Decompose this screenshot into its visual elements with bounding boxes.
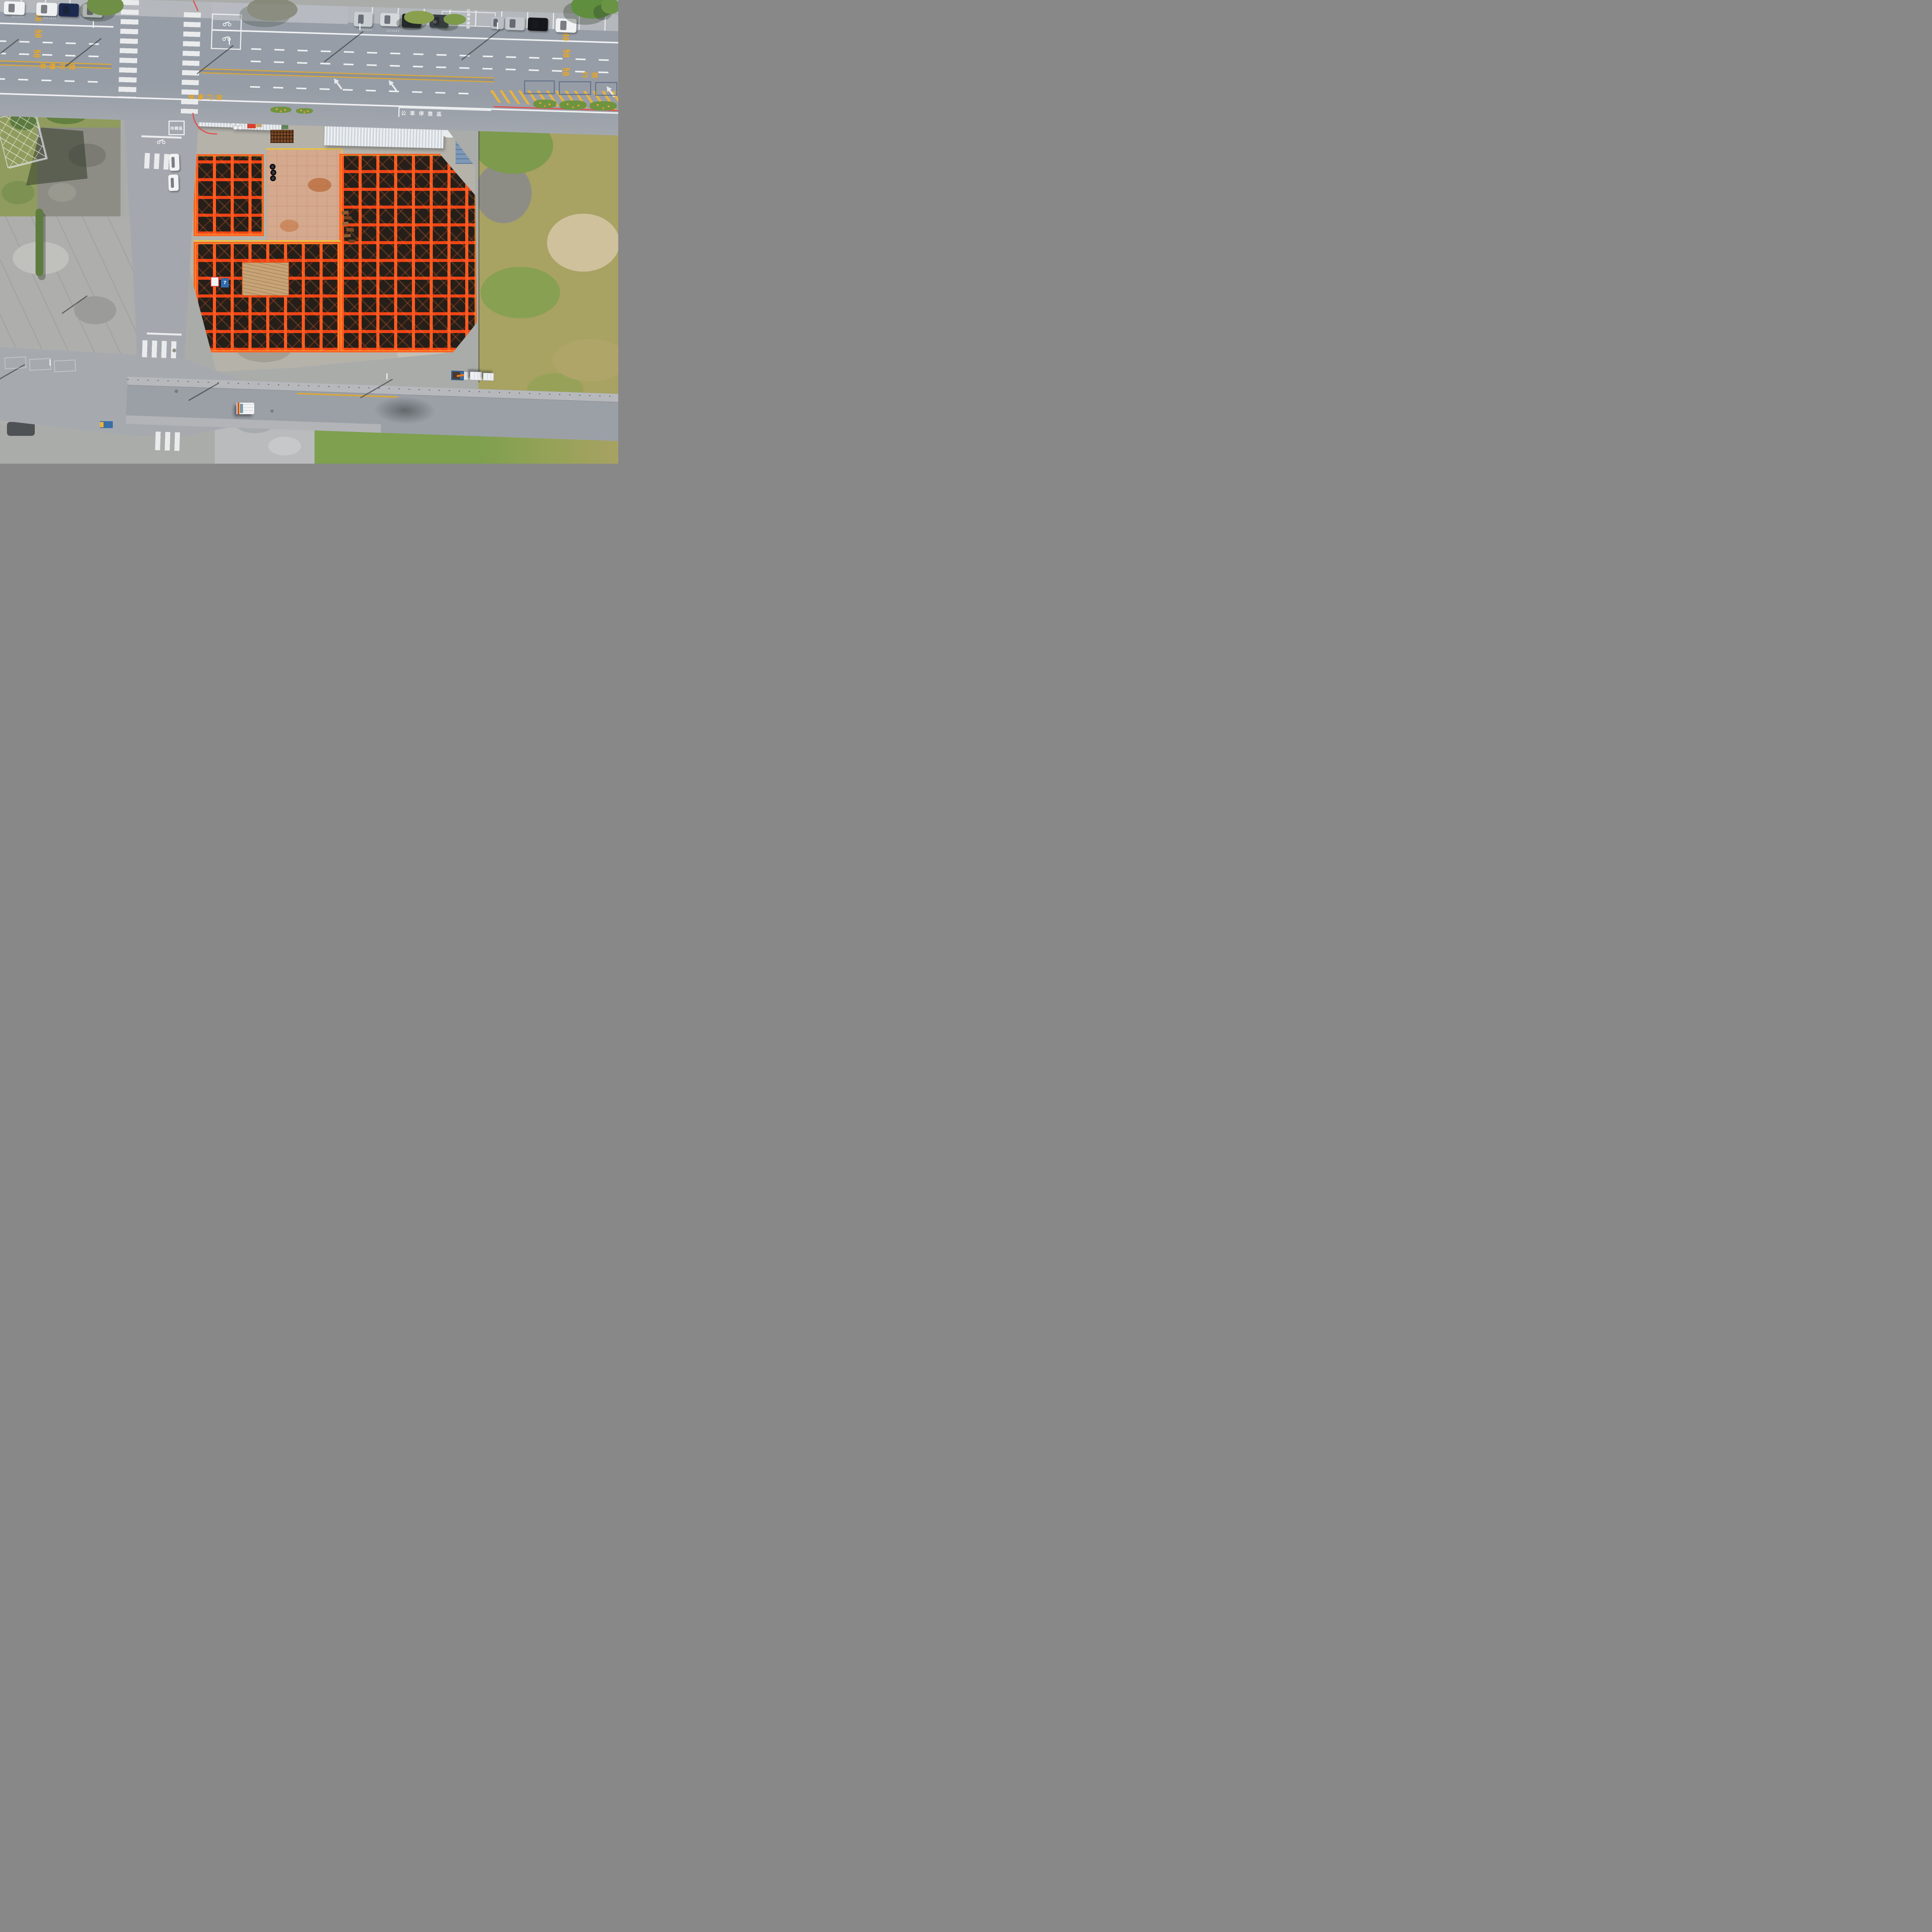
crosswalk-east [181, 12, 201, 114]
vacant-lot-right [478, 111, 618, 404]
blue-tarp-structure [456, 131, 474, 164]
mini-truck [100, 421, 113, 428]
lane-line-dashed [0, 53, 112, 58]
street-light-pole [93, 21, 94, 28]
car-white [169, 154, 180, 171]
lumber-stack [349, 240, 355, 243]
formwork-pit-south [194, 242, 340, 352]
bicycle-icon [223, 22, 231, 27]
car-white [168, 175, 179, 191]
lumber-stack [344, 216, 352, 219]
bus-windshield [240, 404, 243, 413]
street-light-pole [497, 22, 498, 29]
van-silver [354, 12, 372, 27]
speed-marking: 50 50 [561, 49, 563, 57]
car-white [36, 2, 57, 16]
lumber-stack [342, 211, 349, 215]
blue-sign: 7 [221, 278, 229, 287]
tree [601, 0, 618, 14]
cable-drum-stack [270, 164, 280, 182]
wait-zone-label: 待轉區 [170, 125, 183, 131]
suv-white [555, 18, 577, 33]
stop-line [147, 332, 182, 335]
bus-roof [243, 403, 253, 413]
wet-stain [373, 395, 436, 425]
manhole-cover [433, 20, 437, 24]
flowering-hedge [560, 100, 587, 110]
car-navy [58, 3, 79, 17]
site-notice-board [211, 277, 219, 287]
plywood-deck [242, 262, 289, 296]
bus-stop-label: 公車停靠區 [466, 9, 471, 30]
debris-pile [7, 422, 35, 436]
scooter-parking-box [524, 80, 555, 94]
scooter-parking-box [595, 82, 617, 96]
flowering-hedge [270, 107, 291, 113]
tree [404, 11, 434, 24]
car-silver [380, 13, 400, 27]
lane-line [0, 22, 114, 27]
flowering-hedge [533, 100, 556, 108]
car-black [527, 17, 548, 31]
flowering-hedge [590, 101, 617, 111]
box-truck [470, 371, 483, 380]
formwork-pit-northwest [194, 154, 264, 236]
parking-space-number: 2513241 [359, 28, 372, 31]
car-silver [505, 17, 525, 31]
two-stage-bike-box [211, 14, 242, 50]
car-white [3, 1, 25, 15]
lumber-stack [342, 222, 349, 226]
faded-parking-box [4, 357, 26, 369]
manhole-cover [270, 410, 274, 413]
street-light-pole [386, 373, 388, 379]
crosswalk-west [118, 0, 139, 98]
bicycle-icon [157, 140, 165, 145]
faded-parking-box [29, 358, 51, 371]
lumber-stack [344, 234, 351, 238]
safety-railing [266, 148, 342, 150]
speed-marking: 40 40 [33, 14, 36, 20]
lane-line-dashed [0, 78, 107, 83]
aerial-photo-construction-site: 7 公車停靠區 40 [0, 0, 618, 464]
speed-marking: 50 50 [33, 30, 35, 37]
lane-line-dashed [250, 86, 474, 95]
wait-zone-box: 待轉區 [168, 121, 185, 135]
scooter-parking-box [559, 81, 591, 95]
fence-line [478, 112, 480, 383]
manhole-cover [175, 389, 178, 393]
manhole-cover [172, 349, 176, 352]
main-road: 公車停靠區 40 40 50 50 50 50 禁行機車 禁行機車 40 40 [0, 0, 618, 136]
lumber-stack [346, 228, 354, 232]
street-light-pole [229, 37, 230, 45]
tour-bus [236, 403, 254, 414]
speed-marking: 50 50 [560, 68, 563, 75]
parking-space-number: 2513243 [386, 29, 400, 32]
crosswalk-bottom-south [155, 432, 180, 451]
wood-pallet-stack [270, 130, 294, 143]
bus-front-stripe [236, 403, 240, 414]
faded-parking-box [54, 360, 76, 372]
speed-marking: 50 50 [31, 50, 34, 57]
parking-space-number: 2513239 [43, 17, 56, 20]
flowering-hedge [296, 108, 313, 114]
formwork-pit-east [339, 154, 477, 352]
speed-marking: 40 40 [561, 33, 563, 40]
median-island [201, 68, 494, 83]
tree-bare [247, 0, 298, 21]
box-truck [483, 373, 494, 381]
parking-space-number: 2513237 [12, 15, 25, 18]
tree [444, 14, 466, 25]
stop-line [141, 135, 182, 139]
hedge-row [36, 209, 43, 276]
crane-truck [451, 371, 469, 381]
safety-railing [194, 240, 340, 241]
truck-cab [464, 372, 469, 379]
green-dumpster [282, 124, 288, 129]
